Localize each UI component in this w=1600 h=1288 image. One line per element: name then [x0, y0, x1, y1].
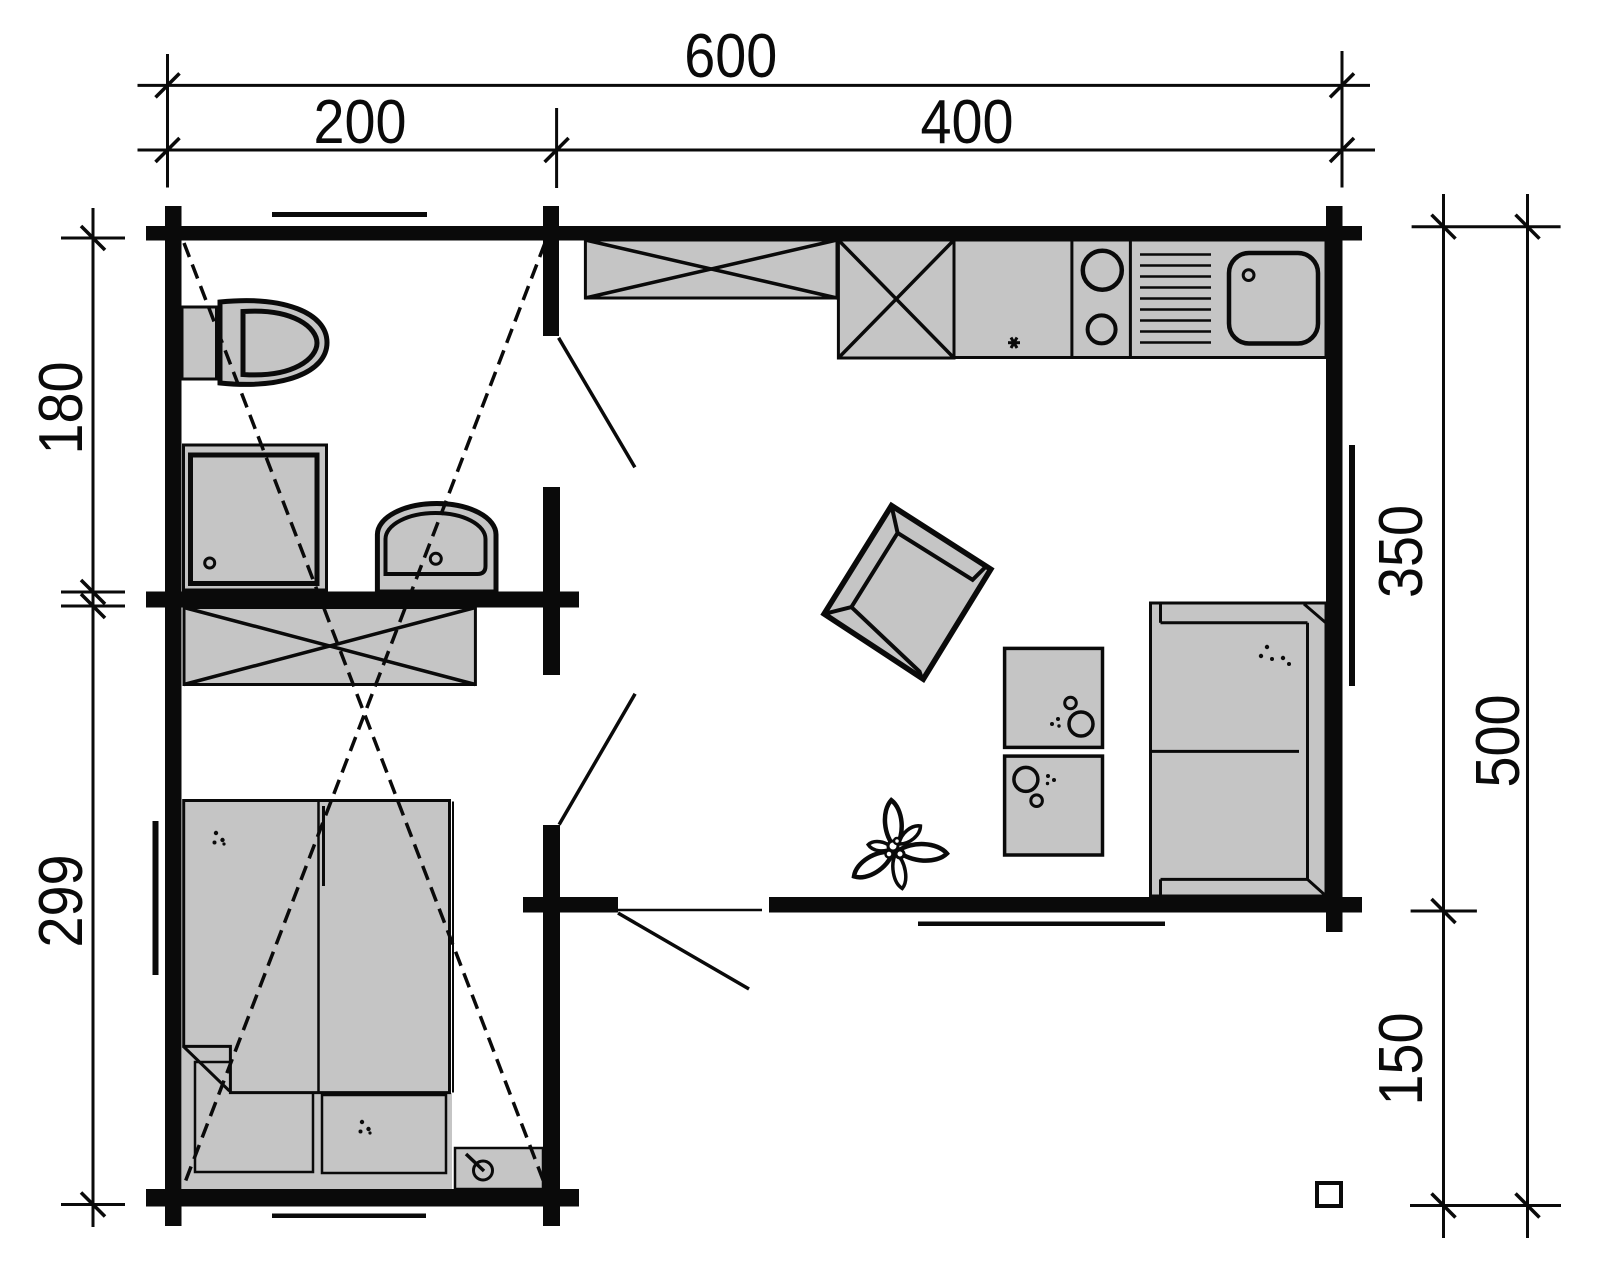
svg-text:350: 350: [1367, 505, 1436, 598]
svg-text:400: 400: [921, 88, 1014, 157]
svg-text:200: 200: [314, 88, 407, 157]
svg-text:180: 180: [27, 362, 96, 455]
svg-text:500: 500: [1464, 695, 1533, 788]
svg-text:299: 299: [27, 855, 96, 948]
svg-text:600: 600: [684, 22, 777, 91]
svg-text:150: 150: [1367, 1013, 1436, 1106]
